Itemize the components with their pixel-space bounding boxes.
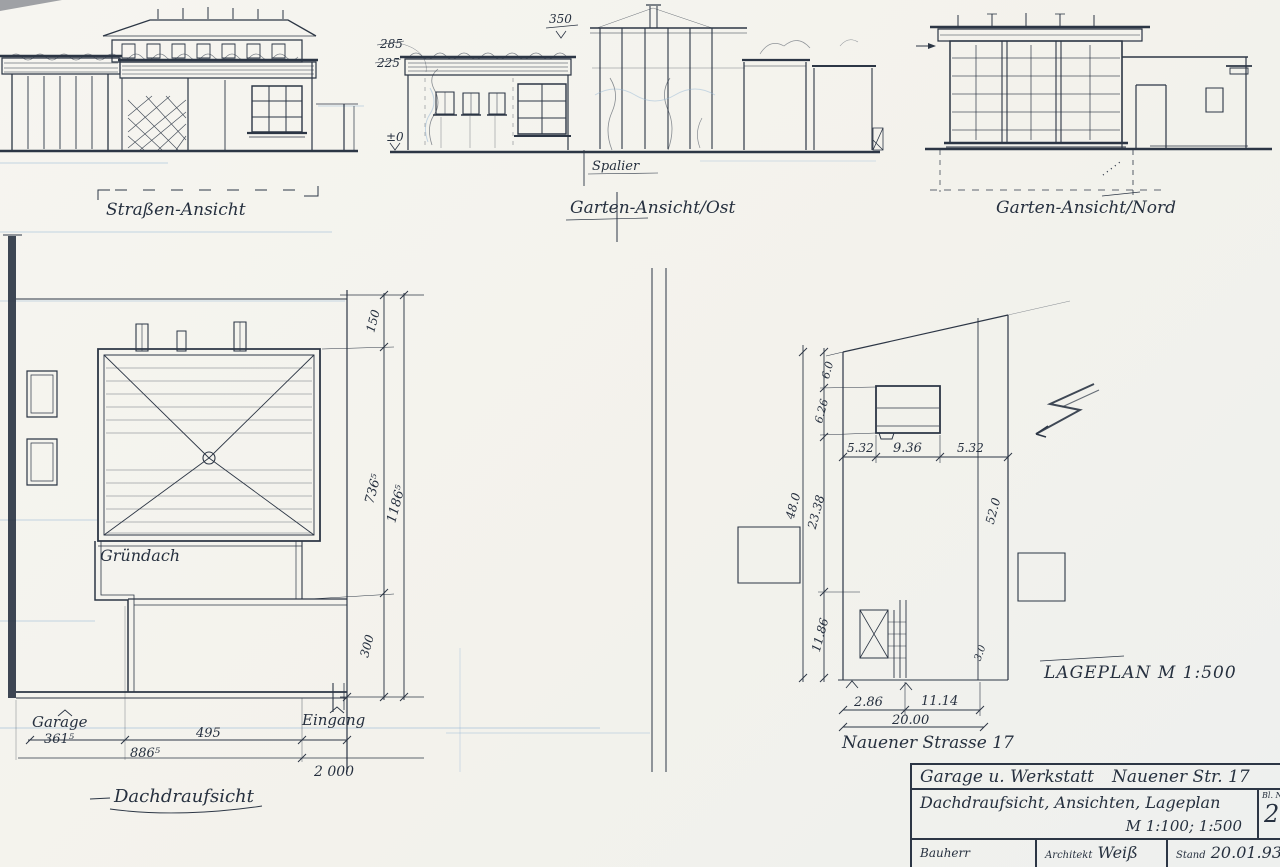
roof-ticks <box>958 13 1094 27</box>
ground-level-dim: ±0 <box>386 130 404 144</box>
dim-736: 736⁵ <box>362 472 384 506</box>
leader-arrowhead <box>928 43 936 49</box>
hip-lines <box>104 355 314 535</box>
caret-mark <box>900 683 912 690</box>
dim-1186: 1186⁵ <box>384 483 409 525</box>
title-block-row-project: Garage u. Werkstatt Nauener Str. 17 <box>912 765 1280 790</box>
ground-lines <box>0 149 1272 152</box>
dim-48-0: 48.0 <box>783 491 804 522</box>
status-cell: Stand 20.01.93 <box>1166 840 1280 867</box>
rooflight-lower <box>27 439 57 485</box>
chimneys <box>136 322 246 351</box>
dim-5-32-left: 5.32 <box>847 441 874 455</box>
scan-corner-shadow <box>0 0 62 11</box>
title-block-row-parties: Bauherr Architekt Weiß Stand 20.01.93 <box>912 840 1280 867</box>
dim-2-86: 2.86 <box>853 695 883 710</box>
neighbor-building-west <box>738 527 800 583</box>
garden-east-elevation-label: Garten-Ansicht/Ost <box>570 198 736 218</box>
dim-3-0: 3.0 <box>973 643 989 662</box>
neighbor-building-east <box>1018 553 1065 601</box>
street-elevation-label: Straßen-Ansicht <box>106 200 246 220</box>
status-label: Stand <box>1176 850 1206 861</box>
dim-150: 150 <box>363 308 383 334</box>
basement-bracket-right <box>304 186 318 196</box>
glazed-wall <box>944 41 1128 147</box>
east-small-windows <box>433 92 507 115</box>
garage-canopy-band <box>2 58 120 74</box>
dim-11-14: 11.14 <box>921 694 958 709</box>
street-window <box>247 86 307 137</box>
client-label: Bauherr <box>920 846 970 860</box>
caret-mark <box>846 681 858 688</box>
sheet-number-cell: Bl. N 2 <box>1257 790 1280 838</box>
dim-6-26: 6.26 <box>812 398 831 425</box>
level-mark-zero <box>390 143 400 150</box>
main-roof-outline <box>98 349 320 541</box>
site-plan-title: LAGEPLAN M 1:500 <box>1043 663 1237 683</box>
drawing-canvas: Straßen-Ansicht 285 225 350 ±0 <box>0 0 1280 867</box>
dim-886: 886⁵ <box>130 746 161 761</box>
low-building-window <box>1206 88 1223 112</box>
street-elevation-drawing: Straßen-Ansicht <box>0 7 358 220</box>
ridge-vents <box>158 7 283 19</box>
roof-plan-title: Dachdraufsicht <box>113 786 255 807</box>
hip-roof-outline <box>103 20 316 36</box>
street-name-label: Nauener Strasse 17 <box>841 733 1014 753</box>
architect-cell: Architekt Weiß <box>1035 840 1166 867</box>
pergola <box>590 5 747 150</box>
dim-6-0: 6.0 <box>819 360 836 380</box>
rooflight-upper <box>27 371 57 417</box>
plot-north-edge <box>843 315 1008 352</box>
dim-2000: 2 000 <box>313 764 354 780</box>
project-address: Nauener Str. 17 <box>1112 767 1250 787</box>
architect-name: Weiß <box>1097 843 1137 862</box>
tree-scribble <box>760 40 810 54</box>
gate-crosshatch <box>128 96 186 150</box>
title-underline <box>110 806 262 813</box>
garden-north-elevation-drawing: Garten-Ansicht/Nord <box>916 13 1252 218</box>
title-block-row-sheet: Dachdraufsicht, Ansichten, Lageplan M 1:… <box>912 790 1280 840</box>
ceiling-height-dim: 225 <box>376 56 400 70</box>
level-mark <box>556 31 566 38</box>
dim-300: 300 <box>357 633 377 659</box>
client-cell: Bauherr <box>912 840 1035 867</box>
fence-hatch-post <box>873 128 883 150</box>
status-date: 20.01.93 <box>1211 843 1280 862</box>
site-plan-dimensions: 6.0 6.26 23.38 11.86 48.0 5.32 9.36 5.32… <box>783 318 1237 753</box>
dim-11-86: 11.86 <box>809 616 832 653</box>
west-boundary-wall <box>8 236 16 698</box>
roof-plan-dimensions: 150 736⁵ 1186⁵ 300 Garage 361⁵ 495 886⁵ … <box>16 290 424 813</box>
low-building-door <box>1136 85 1166 150</box>
garage-doors <box>12 74 108 150</box>
east-large-window <box>514 84 571 136</box>
dim-20-00: 20.00 <box>891 713 929 728</box>
entrance-stairs <box>860 600 906 678</box>
basement-bracket-left <box>98 190 110 200</box>
title-block: Garage u. Werkstatt Nauener Str. 17 Dach… <box>910 763 1280 867</box>
entrance-label: Eingang <box>301 711 365 729</box>
garden-east-elevation-drawing: 285 225 350 ±0 <box>375 5 883 242</box>
sheet-number-label: Bl. N <box>1259 790 1280 800</box>
street-boundary-lines <box>652 268 666 772</box>
dim-495: 495 <box>195 726 221 741</box>
scanned-architectural-drawing: Straßen-Ansicht 285 225 350 ±0 <box>0 0 1280 867</box>
dim-52-0: 52.0 <box>983 496 1004 526</box>
roof-ribs <box>106 368 312 533</box>
spalier-label: Spalier <box>592 159 640 174</box>
drawing-scale: M 1:100; 1:500 <box>1126 817 1242 835</box>
green-roof-label: Gründach <box>100 546 180 565</box>
project-title: Garage u. Werkstatt <box>920 767 1094 787</box>
sheet-title: Dachdraufsicht, Ansichten, Lageplan <box>920 793 1220 812</box>
dim-361: 361⁵ <box>44 732 75 747</box>
garden-north-elevation-label: Garten-Ansicht/Nord <box>996 198 1176 218</box>
clerestory-band <box>112 40 302 62</box>
ridge-height-dim: 350 <box>549 12 572 26</box>
dim-9-36: 9.36 <box>893 441 922 456</box>
pergola-plant <box>697 118 702 148</box>
sheet-number: 2 <box>1259 800 1280 828</box>
roof-plan-drawing: Gründach <box>3 235 347 712</box>
north-arrow <box>1036 384 1099 437</box>
architect-label: Architekt <box>1045 850 1092 861</box>
garage-label: Garage <box>32 713 88 731</box>
dim-5-32-right: 5.32 <box>957 441 984 455</box>
